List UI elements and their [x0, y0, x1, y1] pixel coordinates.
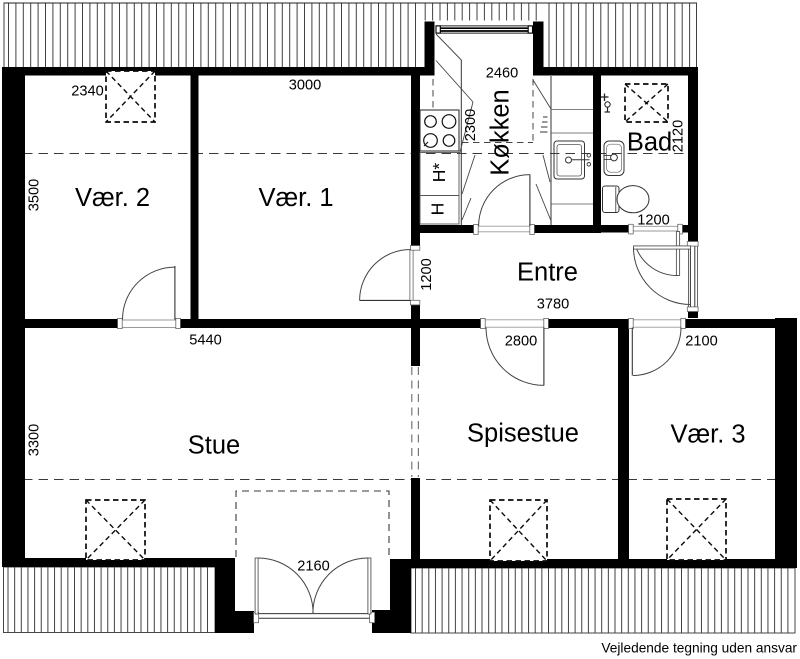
svg-text:Vær. 1: Vær. 1 [258, 184, 333, 212]
svg-text:2160: 2160 [297, 559, 329, 575]
svg-text:Bad: Bad [627, 129, 672, 157]
svg-text:Vejledende tegning uden ansvar: Vejledende tegning uden ansvar [601, 641, 797, 656]
svg-text:Stue: Stue [188, 432, 240, 460]
svg-text:2120: 2120 [671, 120, 687, 152]
svg-text:1200: 1200 [637, 213, 669, 229]
svg-text:2100: 2100 [685, 334, 717, 350]
svg-text:2460: 2460 [486, 66, 518, 82]
svg-text:2800: 2800 [505, 334, 537, 350]
svg-text:Entre: Entre [517, 259, 578, 287]
svg-text:2300: 2300 [463, 109, 479, 141]
svg-text:5440: 5440 [189, 333, 221, 349]
svg-text:3000: 3000 [289, 78, 321, 94]
svg-text:H: H [428, 203, 448, 216]
svg-text:H*: H* [429, 163, 449, 183]
svg-text:Vær. 3: Vær. 3 [670, 421, 745, 449]
svg-text:Køkken: Køkken [487, 89, 515, 175]
svg-text:Spisestue: Spisestue [467, 420, 579, 448]
svg-text:2340: 2340 [71, 84, 103, 100]
svg-text:3500: 3500 [27, 179, 43, 211]
svg-text:3780: 3780 [537, 297, 569, 313]
svg-text:1200: 1200 [419, 258, 435, 290]
svg-text:Vær. 2: Vær. 2 [75, 184, 150, 212]
svg-text:3300: 3300 [27, 424, 43, 456]
